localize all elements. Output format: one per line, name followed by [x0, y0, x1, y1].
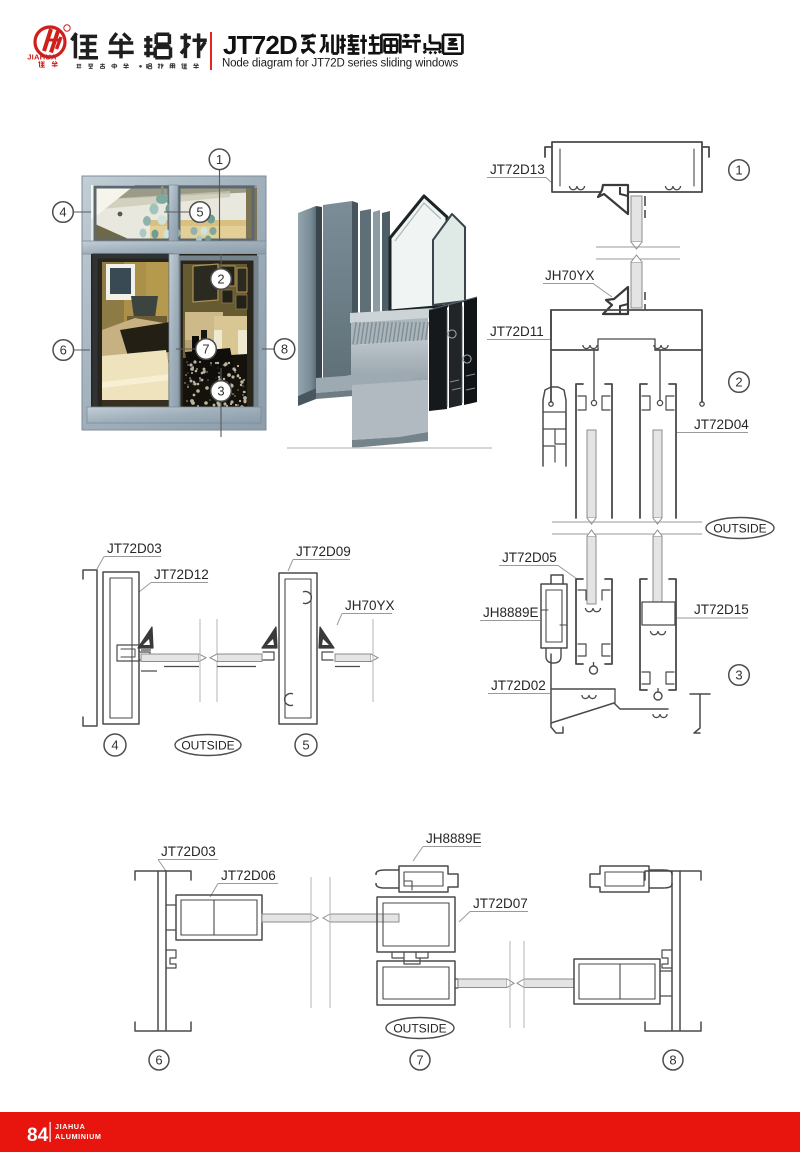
svg-text:5: 5 [196, 205, 203, 220]
svg-text:JT72D12: JT72D12 [154, 567, 209, 582]
svg-text:JT72D05: JT72D05 [502, 550, 557, 565]
svg-text:JT72D03: JT72D03 [107, 541, 162, 556]
svg-text:JIAHUA: JIAHUA [55, 1122, 85, 1131]
svg-text:JT72D07: JT72D07 [473, 896, 528, 911]
svg-text:JT72D09: JT72D09 [296, 544, 351, 559]
svg-text:ALUMINIUM: ALUMINIUM [55, 1132, 102, 1141]
svg-text:JIAHUA: JIAHUA [27, 52, 57, 61]
svg-text:JT72D13: JT72D13 [490, 162, 545, 177]
svg-text:JT72D04: JT72D04 [694, 417, 749, 432]
svg-text:84: 84 [27, 1125, 49, 1146]
svg-text:3: 3 [735, 668, 742, 683]
svg-text:OUTSIDE: OUTSIDE [181, 739, 234, 753]
svg-text:8: 8 [669, 1053, 676, 1068]
svg-text:4: 4 [59, 205, 66, 220]
svg-text:JT72D: JT72D [223, 30, 297, 60]
svg-text:5: 5 [302, 738, 309, 753]
svg-text:JT72D02: JT72D02 [491, 678, 546, 693]
svg-text:6: 6 [60, 343, 67, 358]
svg-text:JH8889E: JH8889E [483, 605, 539, 620]
svg-text:6: 6 [155, 1053, 162, 1068]
svg-text:JT72D03: JT72D03 [161, 844, 216, 859]
svg-text:1: 1 [216, 152, 223, 167]
svg-text:JH70YX: JH70YX [345, 598, 395, 613]
svg-text:JH8889E: JH8889E [426, 831, 482, 846]
svg-text:JT72D15: JT72D15 [694, 602, 749, 617]
svg-text:1: 1 [735, 163, 742, 178]
svg-text:JH70YX: JH70YX [545, 268, 595, 283]
svg-text:4: 4 [111, 738, 118, 753]
svg-text:OUTSIDE: OUTSIDE [393, 1022, 446, 1036]
svg-text:JT72D06: JT72D06 [221, 868, 276, 883]
svg-text:7: 7 [416, 1053, 423, 1068]
svg-text:2: 2 [217, 272, 224, 287]
svg-text:8: 8 [281, 342, 288, 357]
svg-text:7: 7 [202, 342, 209, 357]
svg-text:2: 2 [735, 375, 742, 390]
svg-text:JT72D11: JT72D11 [490, 324, 544, 339]
svg-text:OUTSIDE: OUTSIDE [713, 522, 766, 536]
svg-text:3: 3 [217, 384, 224, 399]
svg-text:Node diagram for JT72D series: Node diagram for JT72D series sliding wi… [222, 57, 459, 69]
